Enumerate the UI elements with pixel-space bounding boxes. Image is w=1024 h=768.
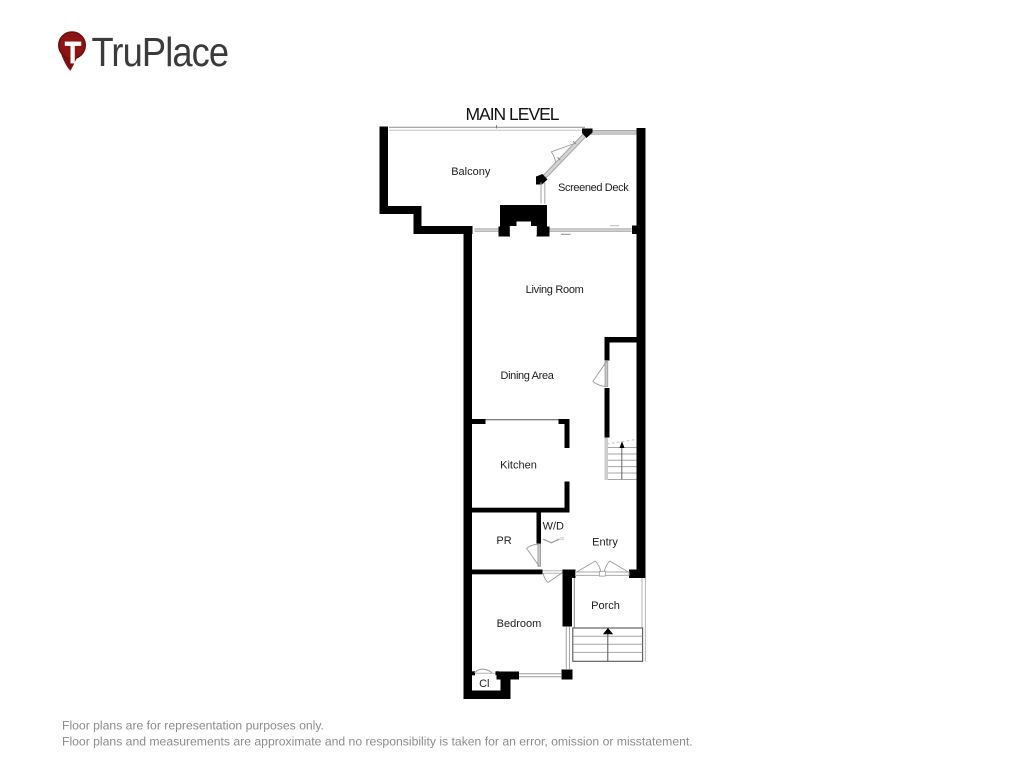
svg-text:PR: PR xyxy=(496,535,511,547)
svg-text:Bedroom: Bedroom xyxy=(497,618,542,630)
svg-text:Floor plans and measurements a: Floor plans and measurements are approxi… xyxy=(62,735,693,749)
svg-text:Porch: Porch xyxy=(591,600,620,612)
svg-text:Floor plans are for representa: Floor plans are for representation purpo… xyxy=(62,719,324,733)
svg-text:Screened Deck: Screened Deck xyxy=(558,182,629,194)
svg-text:Kitchen: Kitchen xyxy=(500,460,537,472)
svg-text:Balcony: Balcony xyxy=(451,166,491,178)
svg-text:TruPlace: TruPlace xyxy=(92,30,229,76)
svg-text:W/D: W/D xyxy=(543,521,564,533)
svg-text:Entry: Entry xyxy=(592,537,618,549)
svg-text:Dining Area: Dining Area xyxy=(500,370,554,382)
svg-text:Living Room: Living Room xyxy=(526,284,584,296)
svg-text:MAIN LEVEL: MAIN LEVEL xyxy=(465,104,559,124)
svg-text:Cl: Cl xyxy=(479,678,489,690)
